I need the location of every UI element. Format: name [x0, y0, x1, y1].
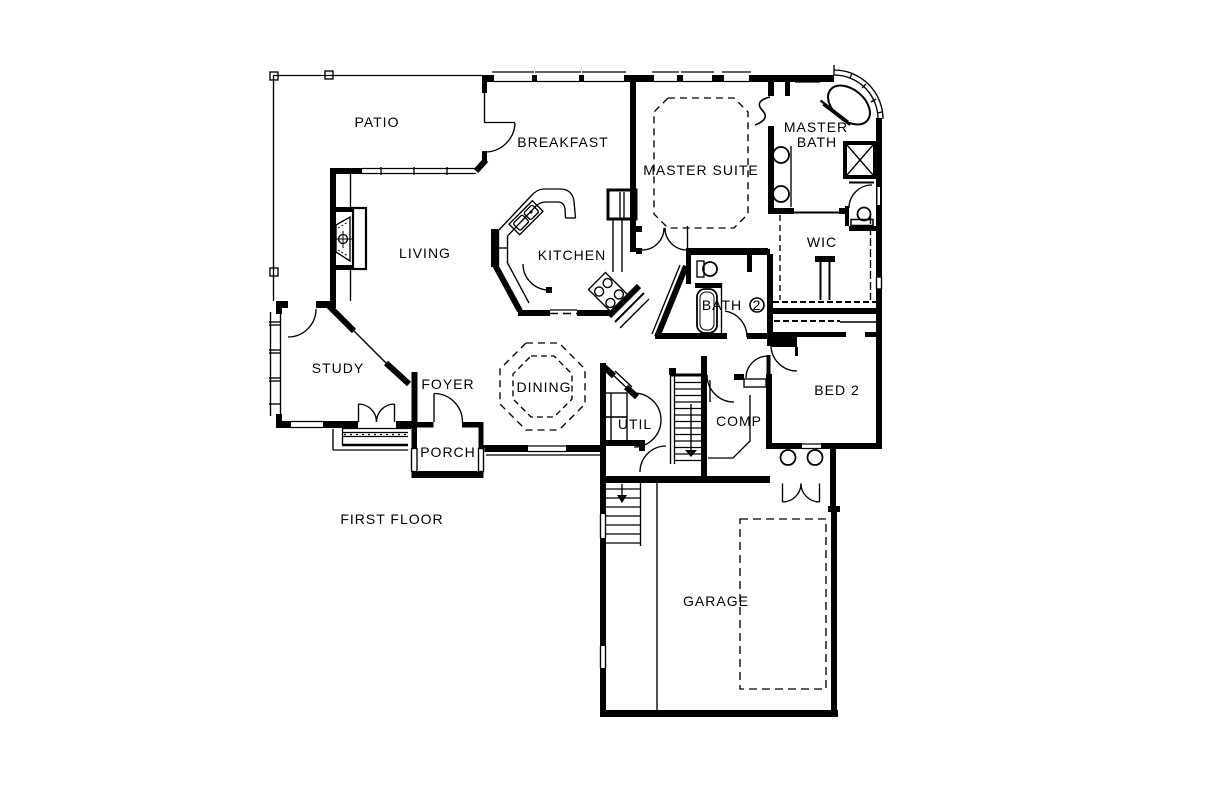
svg-text:LIVING: LIVING — [399, 245, 451, 261]
svg-text:FOYER: FOYER — [421, 376, 474, 392]
svg-text:KITCHEN: KITCHEN — [538, 247, 606, 263]
svg-text:PATIO: PATIO — [355, 114, 400, 130]
svg-text:FIRST FLOOR: FIRST FLOOR — [340, 511, 443, 527]
svg-text:COMP: COMP — [716, 413, 762, 429]
svg-text:MASTER SUITE: MASTER SUITE — [643, 162, 758, 178]
svg-text:2: 2 — [753, 297, 762, 313]
svg-text:MASTER: MASTER — [784, 119, 848, 135]
svg-text:BATH: BATH — [797, 134, 837, 150]
svg-text:GARAGE: GARAGE — [683, 593, 749, 609]
svg-text:DINING: DINING — [517, 379, 572, 395]
svg-text:BED 2: BED 2 — [814, 382, 859, 398]
svg-text:UTIL: UTIL — [618, 416, 652, 432]
svg-text:STUDY: STUDY — [312, 360, 364, 376]
svg-text:BATH: BATH — [702, 297, 742, 313]
svg-text:PORCH: PORCH — [420, 444, 476, 460]
svg-text:WIC: WIC — [807, 234, 837, 250]
svg-text:BREAKFAST: BREAKFAST — [517, 134, 608, 150]
